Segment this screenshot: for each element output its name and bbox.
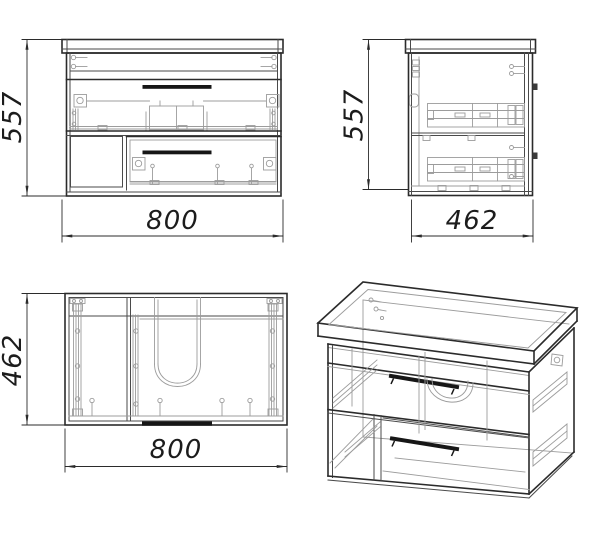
front-countertop <box>62 40 283 54</box>
top-bottom-screws <box>90 398 253 416</box>
top-handle <box>142 422 212 426</box>
side-countertop <box>406 40 536 54</box>
isometric-view <box>318 282 577 498</box>
top-dim-width: 800 <box>65 429 287 472</box>
front-dim-width: 800 <box>62 200 283 242</box>
side-wall-hook-upper <box>533 84 538 91</box>
iso-upper-drawer-handle <box>391 376 457 395</box>
top-sink-cutout <box>155 298 201 387</box>
side-drawer-slides-upper <box>428 104 525 128</box>
side-depth-label: 462 <box>446 206 499 236</box>
side-height-label: 557 <box>340 89 370 142</box>
side-wall-hook-lower <box>533 153 538 160</box>
front-open-compartment <box>71 137 127 191</box>
front-width-label: 800 <box>146 206 199 236</box>
front-upper-drawer <box>67 80 282 136</box>
front-rail-screws <box>71 55 276 68</box>
front-height-label: 557 <box>0 91 28 144</box>
top-dim-depth: 462 <box>0 294 65 426</box>
front-lower-drawer-handle <box>143 151 212 155</box>
iso-interior-hardware <box>333 349 567 472</box>
technical-drawing-canvas: 557 800 <box>0 0 600 543</box>
front-lower-drawer <box>127 137 282 185</box>
top-left-slide <box>73 304 83 416</box>
iso-front-face <box>328 363 529 490</box>
side-view: 557 462 <box>340 40 538 243</box>
front-lower-drawer-pins <box>151 164 254 183</box>
front-dim-height: 557 <box>0 40 66 197</box>
side-dim-depth: 462 <box>412 200 534 242</box>
front-siphon-recess <box>146 101 207 130</box>
drawing-svg: 557 800 <box>0 0 600 543</box>
front-carcass <box>67 53 282 196</box>
top-width-label: 800 <box>150 435 203 465</box>
front-view: 557 800 <box>0 40 283 243</box>
side-dim-height: 557 <box>340 40 409 190</box>
top-carcass <box>65 294 287 426</box>
top-view: 462 800 <box>0 294 287 473</box>
front-upper-drawer-handle <box>143 85 212 89</box>
iso-open-compartment <box>330 419 377 468</box>
top-right-slide <box>268 304 278 416</box>
iso-lower-drawer-handle <box>392 439 457 457</box>
top-depth-label: 462 <box>0 334 28 387</box>
